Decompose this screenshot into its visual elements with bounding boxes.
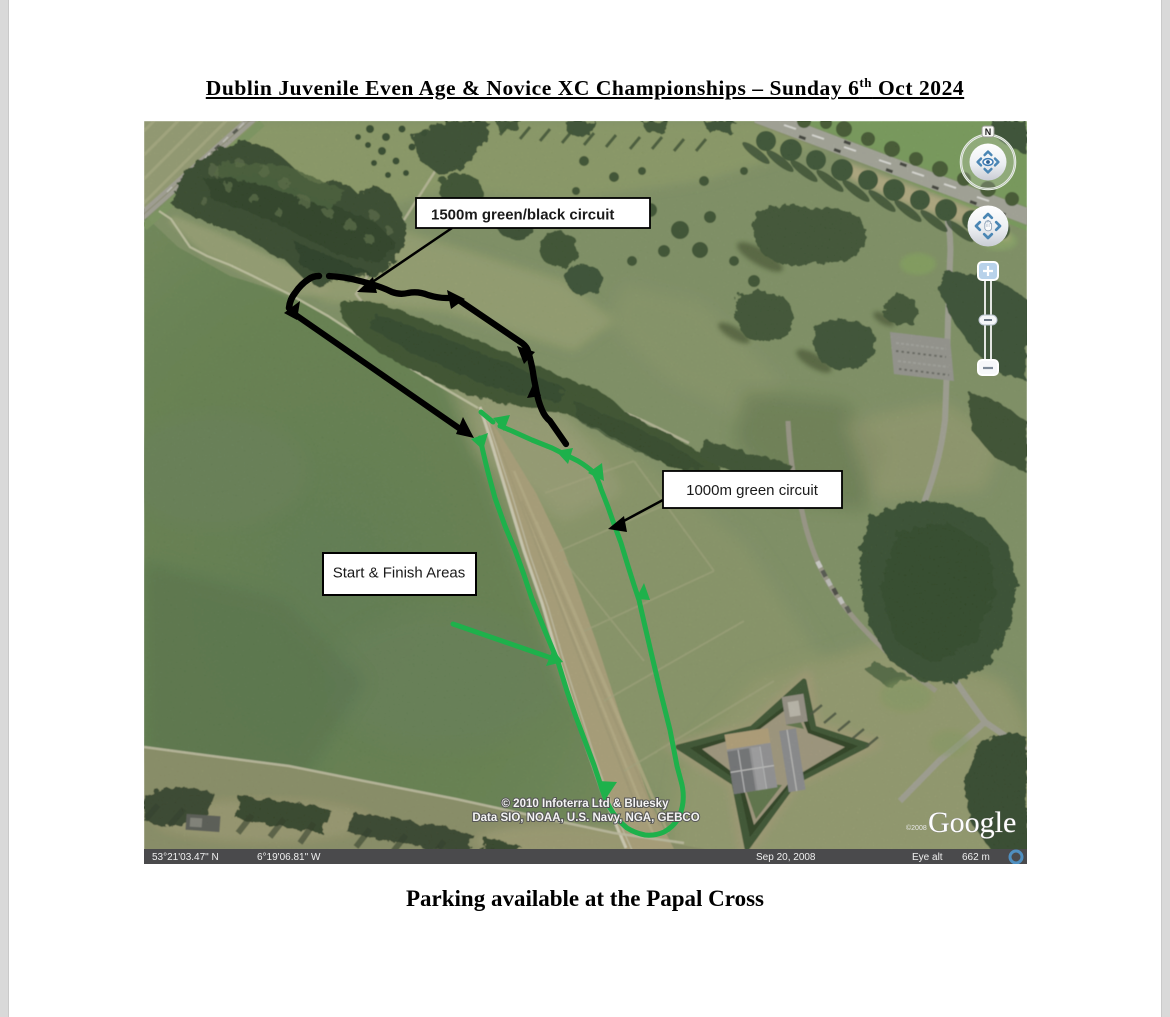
svg-text:N: N — [985, 127, 992, 137]
svg-text:© 2010 Infoterra Ltd & Bluesky: © 2010 Infoterra Ltd & Bluesky — [502, 798, 670, 810]
svg-text:6°19'06.81" W: 6°19'06.81" W — [257, 852, 321, 863]
svg-text:Data SIO, NOAA, U.S. Navy, NGA: Data SIO, NOAA, U.S. Navy, NGA, GEBCO — [472, 812, 699, 824]
svg-text:©2008: ©2008 — [906, 824, 927, 832]
svg-text:1000m green circuit: 1000m green circuit — [686, 482, 819, 499]
svg-text:Google: Google — [928, 806, 1016, 839]
svg-text:662 m: 662 m — [962, 852, 990, 863]
svg-text:Sep 20, 2008: Sep 20, 2008 — [756, 852, 816, 863]
svg-text:Eye alt: Eye alt — [912, 852, 943, 863]
svg-text:Start & Finish Areas: Start & Finish Areas — [333, 565, 466, 582]
svg-text:1500m green/black circuit: 1500m green/black circuit — [431, 207, 614, 224]
svg-text:53°21'03.47" N: 53°21'03.47" N — [152, 852, 219, 863]
